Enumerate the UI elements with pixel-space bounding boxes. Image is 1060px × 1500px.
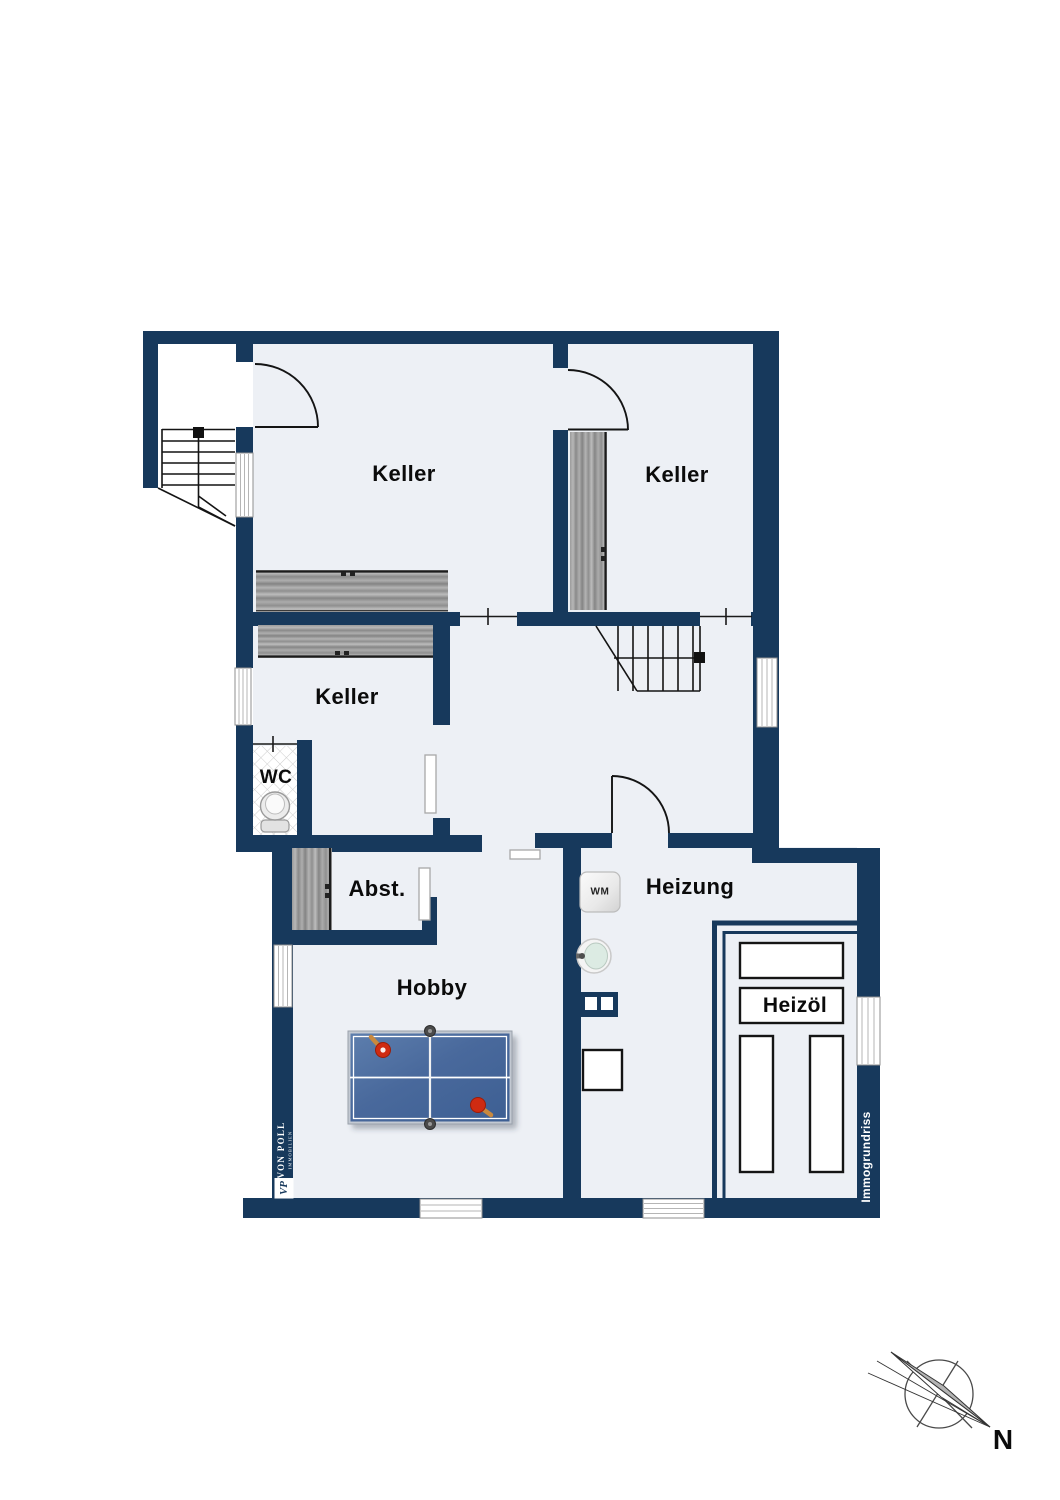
stairs-exterior — [158, 427, 235, 526]
window-corridor-right — [757, 658, 777, 727]
room-label-heizoel: Heizöl — [763, 994, 827, 1018]
stair-newel — [193, 427, 204, 438]
toilet-icon — [261, 792, 290, 832]
sink-icon — [576, 939, 611, 973]
window-stair — [236, 453, 253, 517]
door-leaf-abst — [419, 868, 430, 920]
door-leaf-hobby — [510, 850, 540, 859]
window-heizung-right — [857, 997, 880, 1065]
floor-plan-drawing — [0, 0, 1060, 1500]
room-label-keller-3: Keller — [315, 684, 379, 710]
wardrobe-keller2 — [570, 432, 607, 610]
room-label-wc: WC — [260, 767, 292, 789]
wall-hobby-heizung — [563, 847, 581, 1198]
window-hobby-bottom — [420, 1199, 482, 1218]
room-label-keller-1: Keller — [372, 461, 436, 487]
room-label-hobby: Hobby — [397, 975, 467, 1001]
boiler-icon — [583, 1050, 622, 1090]
wall-right-upper — [753, 331, 779, 848]
wall-bottom — [243, 1198, 880, 1218]
watermark-label: Immogrundriss — [859, 1111, 873, 1202]
window-heizung-bottom — [643, 1199, 704, 1218]
room-label-heizung: Heizung — [646, 874, 734, 900]
room-label-abst: Abst. — [349, 876, 406, 902]
wardrobe-keller3 — [258, 625, 433, 658]
wardrobe-abst — [292, 848, 332, 930]
stair-newel — [694, 652, 705, 663]
window-keller3 — [235, 668, 251, 725]
room-label-keller-2: Keller — [645, 462, 709, 488]
vonpoll-logo-subtext: IMMOBILIEN — [287, 1131, 292, 1170]
wall-stair-left — [143, 331, 158, 488]
window-hobby-left — [274, 945, 292, 1007]
compass-rose — [868, 1352, 990, 1428]
door-leaf-keller3 — [425, 755, 436, 813]
floor-plan-page: Keller Keller Keller WC Abst. Hobby Heiz… — [0, 0, 1060, 1500]
wardrobe-keller1 — [256, 570, 448, 612]
vonpoll-logo-text: VON POLL — [276, 1122, 286, 1179]
north-label: N — [993, 1424, 1013, 1456]
ping-pong-table — [348, 1026, 517, 1130]
vp-monogram: VP — [278, 1181, 290, 1195]
wall-abst-bottom — [272, 930, 437, 945]
washing-machine-label: WM — [591, 887, 610, 898]
wall-top — [143, 331, 779, 344]
